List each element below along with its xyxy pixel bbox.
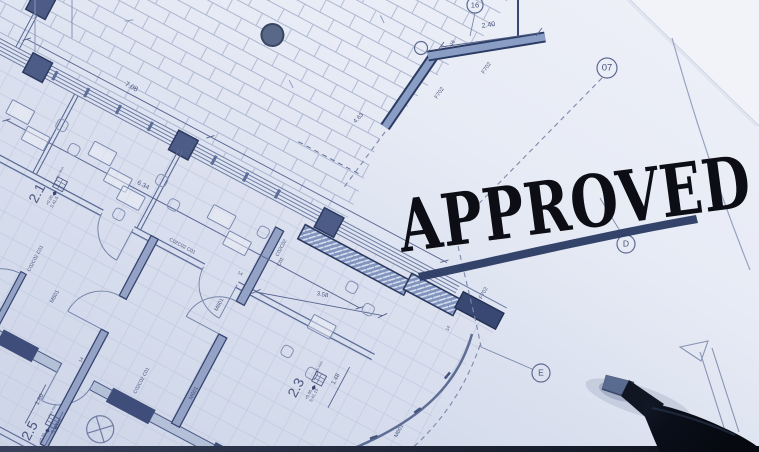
photo-color-wash xyxy=(0,0,759,452)
blueprint-scene: 7.086.344.633.581.481.805.41M601M601M601… xyxy=(0,0,759,452)
blueprint-approved-photo: 7.086.344.633.581.481.805.41M601M601M601… xyxy=(0,0,759,452)
